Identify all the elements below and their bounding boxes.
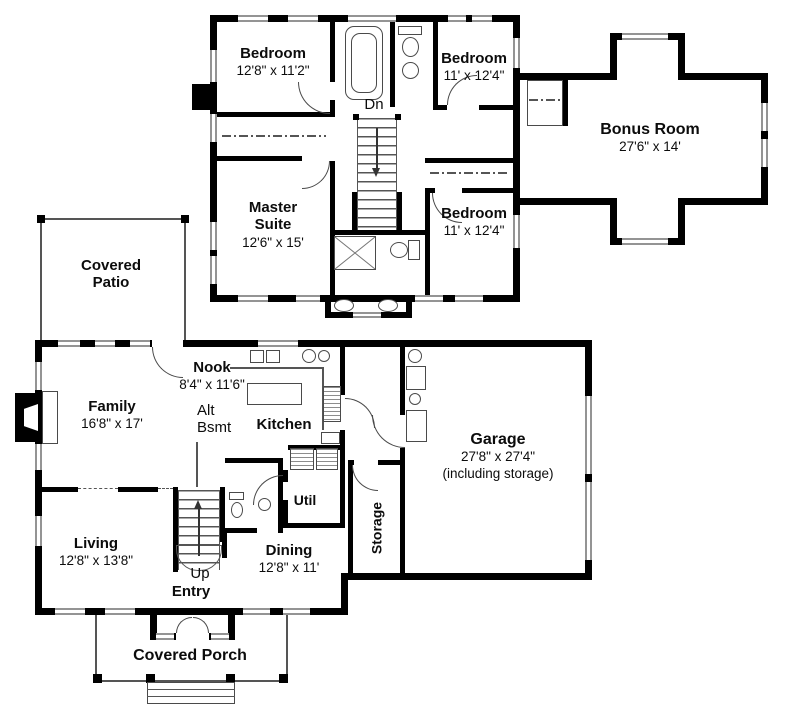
dining-label: Dining: [266, 543, 313, 560]
stair-newel: [353, 114, 359, 120]
door-arc: [372, 415, 405, 448]
shower: [334, 236, 376, 270]
window: [238, 295, 268, 302]
counter-edge: [230, 367, 322, 369]
shower-glass-lines: [335, 237, 375, 269]
front-door-arc: [193, 617, 209, 633]
cooktop: [250, 350, 264, 363]
bathtub-basin: [351, 33, 377, 93]
stair-arrow-shaft: [376, 128, 378, 170]
toilet-tank: [398, 26, 422, 35]
wall: [433, 105, 447, 110]
porch-step-line: [147, 689, 235, 690]
bedroom3-dims: 11' x 12'4": [444, 224, 505, 239]
wall: [35, 340, 592, 347]
wall: [678, 73, 768, 80]
patio-post: [37, 215, 45, 223]
wall: [118, 487, 158, 492]
window: [130, 340, 150, 347]
attic-closet: [527, 80, 563, 126]
window: [238, 15, 268, 22]
garage-label: Garage: [470, 431, 525, 449]
stairs-up-label: Up: [190, 566, 209, 583]
wall: [400, 347, 405, 415]
stairs-down-label: Dn: [364, 97, 383, 114]
nook-dims: 8'4" x 11'6": [179, 378, 245, 393]
wall: [330, 230, 425, 235]
alt-bsmt-line: [196, 442, 198, 487]
living-label: Living: [74, 536, 118, 553]
garage-note: (including storage): [442, 467, 553, 482]
closet-doors: [430, 172, 510, 174]
toilet-bowl: [390, 242, 408, 258]
entry-label: Entry: [172, 584, 210, 601]
window: [353, 312, 381, 318]
window: [455, 295, 483, 302]
sink: [318, 350, 330, 362]
wall: [341, 573, 592, 580]
storage-label: Storage: [369, 502, 384, 554]
wall: [222, 533, 227, 558]
sink: [378, 299, 398, 312]
porch-steps: [147, 682, 235, 704]
washer: [290, 448, 314, 470]
closet-doors: [222, 135, 326, 137]
wall: [348, 460, 353, 573]
wall: [390, 22, 395, 107]
window: [55, 608, 85, 615]
living-dims: 12'8" x 13'8": [59, 554, 133, 569]
util-label: Util: [294, 493, 317, 508]
covered-patio-label-1: Covered: [81, 258, 141, 275]
wall: [225, 528, 257, 533]
patio-outline: [184, 218, 186, 342]
toilet-bowl: [402, 37, 419, 57]
water-heater: [408, 349, 422, 363]
wall: [462, 188, 520, 193]
covered-patio-label-2: Patio: [93, 275, 130, 292]
door-arc: [298, 82, 330, 114]
window: [288, 15, 318, 22]
bedroom1-label: Bedroom: [240, 46, 306, 63]
sink: [334, 299, 354, 312]
wall: [42, 487, 78, 492]
toilet-bowl: [231, 502, 243, 518]
bedroom3-label: Bedroom: [441, 206, 507, 223]
sink: [402, 62, 419, 79]
window: [210, 256, 217, 284]
bedroom2-dims: 11' x 12'4": [444, 69, 505, 84]
door-opening: [152, 340, 183, 347]
wall: [563, 80, 568, 126]
refrigerator: [321, 432, 340, 444]
alt-bsmt-label-1: Alt: [197, 403, 215, 420]
range: [323, 386, 341, 422]
patio-outline: [40, 218, 42, 342]
sink: [258, 498, 271, 511]
cooktop: [266, 350, 280, 363]
window: [622, 238, 668, 245]
wall: [520, 198, 617, 205]
alt-bsmt-label-2: Bsmt: [197, 420, 231, 437]
door-arc: [345, 398, 375, 428]
window: [513, 215, 520, 248]
wall: [520, 73, 617, 80]
wall: [330, 161, 335, 295]
bedroom1-dims: 12'8" x 11'2": [236, 64, 309, 79]
window: [210, 50, 217, 82]
kitchen-label: Kitchen: [256, 417, 311, 434]
window: [761, 103, 768, 131]
wall: [217, 156, 302, 161]
wall: [330, 22, 335, 82]
window: [472, 15, 492, 22]
bonus-room-dims: 27'6" x 14': [619, 140, 681, 155]
wall: [283, 470, 288, 482]
stair-newel: [395, 114, 401, 120]
bonus-room-label: Bonus Room: [600, 121, 700, 139]
wall: [397, 192, 402, 235]
window: [35, 444, 42, 470]
nook-label: Nook: [193, 360, 231, 377]
porch-outline: [95, 615, 97, 681]
wall: [425, 193, 430, 295]
door-arc: [302, 161, 330, 189]
sidelight-window: [211, 633, 229, 640]
window: [105, 608, 135, 615]
chimney: [192, 84, 212, 110]
door-arc: [352, 465, 378, 491]
stair-arrow-shaft: [198, 508, 200, 556]
wall: [283, 523, 345, 528]
wall: [400, 460, 405, 573]
wall: [678, 198, 768, 205]
window: [210, 114, 217, 142]
master-suite-dims: 12'6" x 15': [242, 236, 304, 251]
porch-step-line: [147, 696, 235, 697]
wall: [425, 158, 520, 163]
porch-post: [93, 674, 102, 683]
floor-drain: [409, 393, 421, 405]
porch-post: [279, 674, 288, 683]
window: [283, 608, 310, 615]
furnace: [406, 366, 426, 390]
floor-plan: Bedroom 12'8" x 11'2" Bedroom 11' x 12'4…: [0, 0, 800, 715]
window: [35, 516, 42, 546]
front-door-arc: [176, 617, 192, 633]
toilet-tank: [229, 492, 244, 500]
window: [296, 295, 320, 302]
window: [622, 33, 668, 40]
stair-arrow-down: [372, 168, 380, 177]
window: [448, 15, 466, 22]
window: [258, 340, 298, 347]
window: [35, 362, 42, 390]
wall: [400, 448, 405, 460]
bedroom2-label: Bedroom: [441, 51, 507, 68]
dining-dims: 12'8" x 11': [259, 561, 320, 576]
wall: [225, 458, 283, 463]
toilet-tank: [408, 240, 420, 260]
patio-post: [181, 215, 189, 223]
sidelight-window: [156, 633, 174, 640]
wall: [217, 112, 335, 117]
garage-door-opening: [585, 396, 592, 474]
covered-porch-label: Covered Porch: [133, 647, 247, 665]
family-label: Family: [88, 399, 136, 416]
window: [95, 340, 115, 347]
master-suite-label-2: Suite: [255, 217, 292, 234]
garage-door-opening: [585, 482, 592, 560]
sink: [302, 349, 316, 363]
wall: [341, 573, 348, 615]
hearth: [42, 391, 58, 444]
window: [761, 139, 768, 167]
master-suite-label-1: Master: [249, 200, 297, 217]
window: [348, 15, 396, 22]
window: [243, 608, 270, 615]
garage-dims: 27'8" x 27'4": [461, 450, 535, 465]
window: [415, 295, 443, 302]
kitchen-island: [247, 383, 302, 405]
window: [513, 38, 520, 68]
door-arc: [152, 347, 183, 378]
closet-line: [529, 99, 561, 101]
patio-outline: [40, 218, 186, 220]
opening-dash: [158, 488, 173, 489]
wall: [340, 430, 345, 528]
family-dims: 16'8" x 17': [81, 417, 143, 432]
window: [58, 340, 80, 347]
wall: [479, 105, 520, 110]
porch-outline: [286, 615, 288, 681]
garage-step: [406, 410, 427, 442]
stair-arrow-up: [194, 500, 202, 509]
wall: [433, 22, 438, 110]
dryer: [316, 448, 338, 470]
window: [210, 222, 217, 250]
opening-dash: [78, 488, 118, 489]
